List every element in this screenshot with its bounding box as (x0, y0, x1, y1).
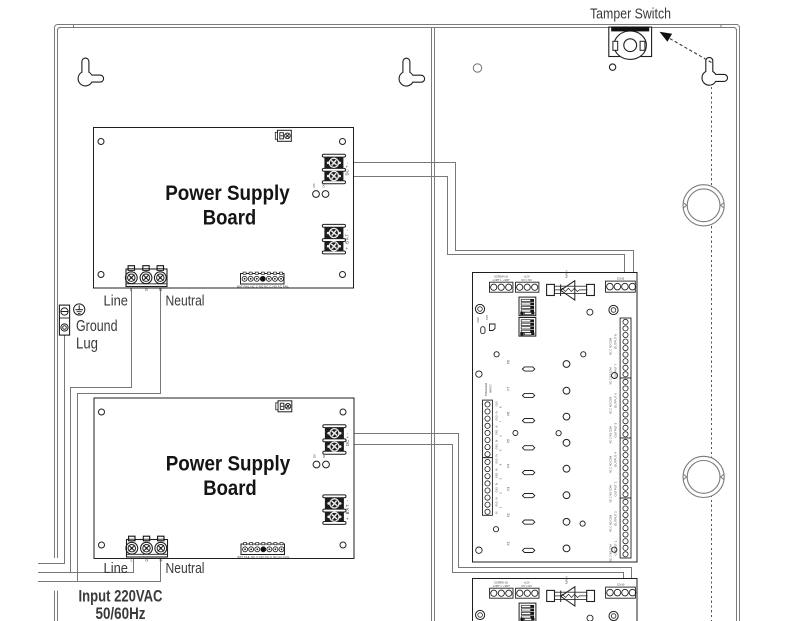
svg-text:IN: IN (496, 483, 499, 486)
svg-text:Power Supply: Power Supply (165, 182, 290, 205)
svg-text:N: N (159, 287, 162, 292)
svg-text:+ BAT -: + BAT - (345, 229, 350, 250)
svg-text:SCREW‑LN: SCREW‑LN (494, 581, 508, 585)
svg-text:MAIN: MAIN (565, 577, 569, 585)
svg-text:OUTPUT 1: OUTPUT 1 (614, 540, 618, 555)
svg-text:F3: F3 (507, 487, 511, 491)
svg-text:FWR: FWR (477, 317, 480, 323)
svg-text:F8: F8 (507, 360, 511, 364)
svg-text:Board: Board (203, 207, 257, 230)
svg-text:12V±0: 12V±0 (617, 583, 625, 587)
svg-text:F2: F2 (507, 513, 511, 517)
svg-text:OV C NC: OV C NC (521, 278, 532, 282)
svg-text:GND: GND (496, 501, 499, 507)
svg-text:OUTPUT 6: OUTPUT 6 (614, 393, 618, 408)
svg-text:SCREW‑LN: SCREW‑LN (494, 275, 508, 279)
svg-text:-LN8T 1, +9MT: -LN8T 1, +9MT (492, 278, 510, 282)
svg-text:GND: GND (496, 415, 499, 421)
svg-text:GND: GND (496, 444, 499, 450)
svg-text:IN: IN (496, 411, 499, 414)
svg-text:Board: Board (203, 477, 257, 500)
svg-text:OUTPUT 7: OUTPUT 7 (614, 363, 618, 378)
svg-text:F4: F4 (507, 464, 511, 468)
svg-text:+ BAT -: + BAT - (345, 499, 350, 520)
svg-text:G: G (145, 287, 148, 292)
svg-text:50/60Hz: 50/60Hz (96, 605, 146, 621)
svg-text:DC + -: DC + - (345, 432, 350, 446)
svg-text:F1: F1 (507, 541, 511, 545)
svg-text:OUTPUT 8: OUTPUT 8 (614, 334, 618, 349)
svg-text:GND: GND (496, 430, 499, 436)
svg-text:NC C NO COM: NC C NO COM (610, 456, 613, 473)
svg-text:Power Supply: Power Supply (166, 453, 291, 476)
svg-text:Neutral: Neutral (166, 560, 205, 577)
svg-text:GND: GND (496, 473, 499, 479)
svg-text:Input 220VAC: Input 220VAC (79, 588, 163, 606)
svg-text:TRB: TRB (486, 315, 489, 320)
svg-text:F5: F5 (507, 439, 511, 443)
svg-text:NC C NO COM: NC C NO COM (610, 397, 613, 414)
svg-text:Neutral: Neutral (166, 292, 205, 309)
svg-text:NC C NO COM: NC C NO COM (610, 367, 613, 384)
svg-text:OUTPUT 4: OUTPUT 4 (614, 452, 618, 467)
svg-text:IN: IN (496, 497, 499, 500)
svg-text:BAT FAIL NC C NO NC C NO: BAT FAIL NC C NO NC C NO AC FAIL (238, 555, 290, 559)
svg-text:Lug: Lug (76, 336, 98, 353)
svg-text:MAIN: MAIN (565, 271, 569, 279)
svg-text:F7: F7 (507, 387, 511, 391)
svg-text:+12V: +12V (523, 275, 529, 279)
svg-text:OUTPUT 5: OUTPUT 5 (614, 422, 618, 437)
svg-text:NC C NO COM: NC C NO COM (610, 544, 613, 561)
svg-text:BAT FAIL NC C NO NC C NO: BAT FAIL NC C NO NC C NO AC FAIL (237, 285, 289, 289)
svg-text:IN: IN (496, 468, 499, 471)
svg-text:F6: F6 (507, 412, 511, 416)
svg-text:OUTPUT 2: OUTPUT 2 (614, 511, 618, 526)
svg-text:GND: GND (496, 458, 499, 464)
svg-text:OV C NC: OV C NC (521, 584, 532, 588)
svg-text:Ground: Ground (76, 318, 118, 335)
svg-text:TRIGGER: TRIGGER (484, 382, 488, 397)
svg-text:INPUT: INPUT (489, 384, 493, 393)
svg-text:OUTPUT 3: OUTPUT 3 (614, 481, 618, 496)
svg-text:NC C NO COM: NC C NO COM (610, 426, 613, 443)
svg-text:NC C NO COM: NC C NO COM (610, 338, 613, 355)
svg-text:DC + -: DC + - (345, 162, 350, 176)
svg-text:N: N (160, 558, 163, 563)
svg-text:NC C NO COM: NC C NO COM (610, 485, 613, 502)
svg-text:GND: GND (496, 401, 499, 407)
svg-text:12V±0: 12V±0 (617, 277, 625, 281)
svg-text:-LN8T 1, +9MT: -LN8T 1, +9MT (492, 584, 510, 588)
svg-text:Tamper Switch: Tamper Switch (590, 7, 671, 23)
svg-text:IN: IN (496, 454, 499, 457)
svg-text:IN: IN (496, 511, 499, 514)
svg-text:G: G (145, 558, 148, 563)
svg-text:Line: Line (104, 292, 129, 309)
svg-text:+12V: +12V (524, 581, 530, 585)
svg-text:GND: GND (496, 487, 499, 493)
svg-text:IN: IN (496, 440, 499, 443)
svg-text:Line: Line (104, 560, 129, 577)
svg-text:NC C NO COM: NC C NO COM (610, 515, 613, 532)
svg-text:IN: IN (496, 425, 499, 428)
